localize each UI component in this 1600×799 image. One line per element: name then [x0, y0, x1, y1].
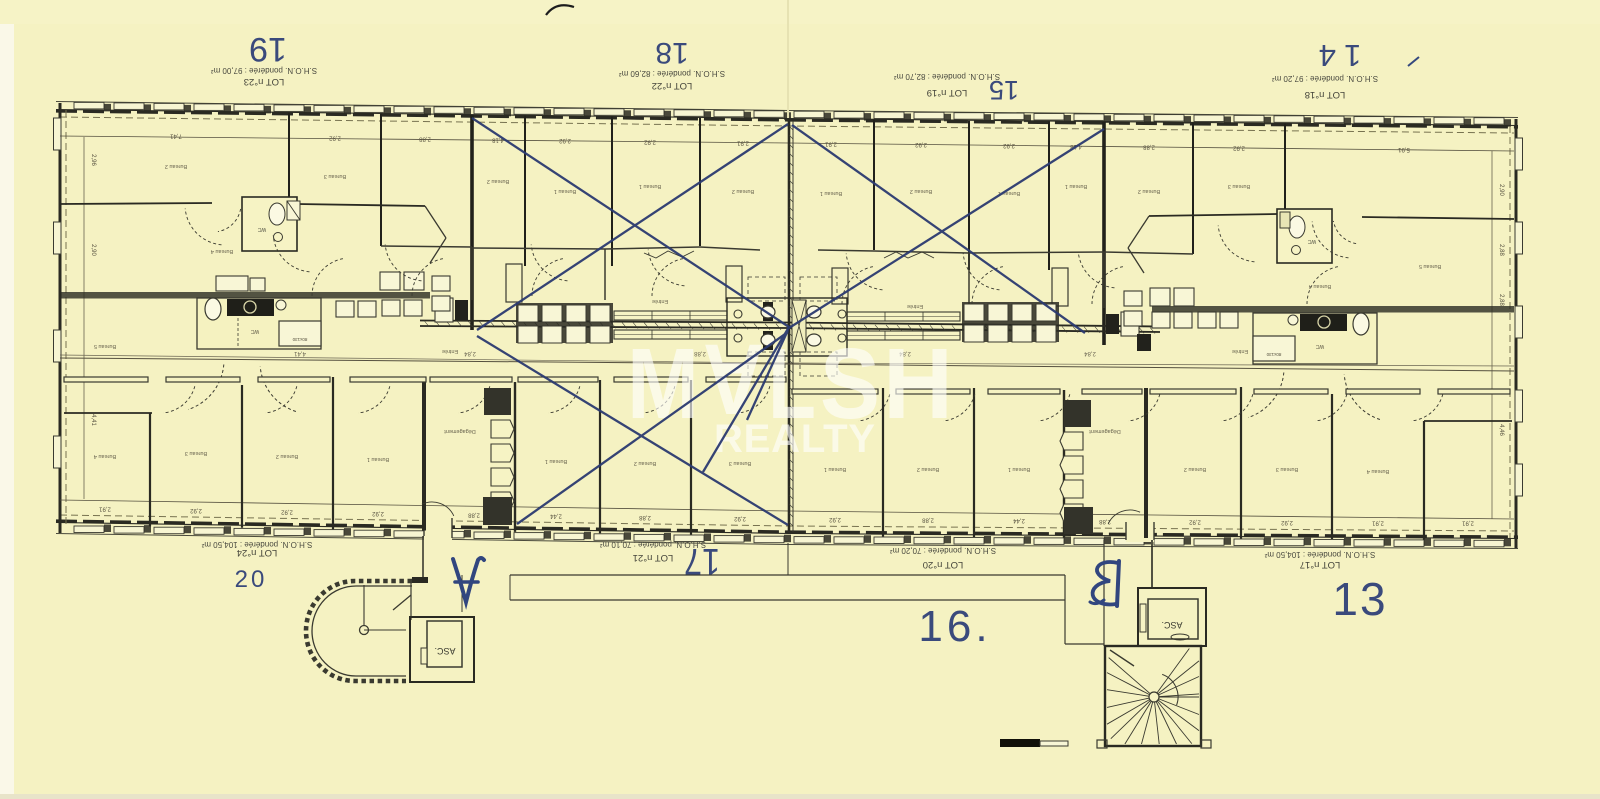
svg-text:Bureau 2: Bureau 2	[910, 188, 932, 194]
svg-text:Entrée: Entrée	[652, 298, 668, 304]
svg-text:2,44: 2,44	[1013, 517, 1025, 523]
svg-text:Bureau 1: Bureau 1	[545, 458, 567, 464]
svg-text:19: 19	[249, 30, 287, 68]
svg-text:2,92: 2,92	[915, 141, 927, 147]
svg-text:2,84: 2,84	[1084, 350, 1096, 356]
svg-text:M: M	[627, 328, 699, 440]
svg-text:2,44: 2,44	[550, 513, 562, 519]
svg-text:ASC.: ASC.	[1161, 620, 1182, 630]
svg-text:Bureau 2: Bureau 2	[487, 178, 509, 184]
svg-text:2,88: 2,88	[1143, 143, 1155, 149]
svg-text:Bureau 3: Bureau 3	[1228, 183, 1250, 189]
svg-text:2,92: 2,92	[372, 510, 384, 516]
svg-text:7,41: 7,41	[170, 132, 182, 138]
svg-text:2,91: 2,91	[1462, 520, 1474, 526]
svg-text:2,92: 2,92	[734, 515, 746, 521]
svg-text:Bureau 3: Bureau 3	[324, 173, 346, 179]
svg-text:Bureau 4: Bureau 4	[1309, 283, 1331, 289]
svg-text:80x130: 80x130	[1266, 352, 1281, 357]
svg-text:WC: WC	[1307, 238, 1316, 244]
svg-text:4,46: 4,46	[1498, 424, 1504, 436]
svg-text:17: 17	[684, 541, 720, 582]
svg-text:14: 14	[1311, 38, 1361, 73]
svg-text:2,96: 2,96	[90, 154, 96, 166]
svg-text:LOT n°18: LOT n°18	[1305, 89, 1346, 100]
svg-text:2,92: 2,92	[190, 507, 202, 513]
svg-text:Bureau 4: Bureau 4	[211, 248, 233, 254]
svg-text:2,88: 2,88	[639, 514, 651, 520]
svg-text:2,88: 2,88	[1498, 294, 1504, 306]
svg-text:5,91: 5,91	[1398, 146, 1410, 152]
svg-text:2,88: 2,88	[419, 136, 431, 142]
svg-text:Bureau 2: Bureau 2	[165, 163, 187, 169]
svg-text:2,88: 2,88	[922, 517, 934, 523]
svg-text:Bureau 3: Bureau 3	[1276, 466, 1298, 472]
svg-text:Entrée: Entrée	[1232, 348, 1248, 354]
svg-text:2,91: 2,91	[825, 140, 837, 146]
svg-text:ASC.: ASC.	[434, 646, 455, 656]
svg-text:2,92: 2,92	[329, 134, 341, 140]
svg-text:2,84: 2,84	[464, 350, 476, 356]
svg-text:Bureau 1: Bureau 1	[554, 188, 576, 194]
svg-text:Bureau 2: Bureau 2	[276, 453, 298, 459]
svg-text:4,41: 4,41	[90, 414, 96, 426]
svg-text:Bureau 1: Bureau 1	[1065, 183, 1087, 189]
svg-text:LOT n°19: LOT n°19	[927, 87, 968, 98]
svg-text:LOT n°24: LOT n°24	[237, 547, 278, 558]
svg-text:Bureau 2: Bureau 2	[732, 188, 754, 194]
svg-text:18: 18	[655, 36, 688, 69]
svg-text:2,92: 2,92	[1281, 519, 1293, 525]
svg-text:Bureau 1: Bureau 1	[639, 183, 661, 189]
svg-text:80x130: 80x130	[292, 337, 307, 342]
svg-text:2,88: 2,88	[468, 511, 480, 517]
svg-text:2,92: 2,92	[1233, 144, 1245, 150]
svg-text:Dégagement: Dégagement	[1089, 428, 1121, 434]
svg-text:20: 20	[235, 566, 268, 593]
svg-text:LOT n°20: LOT n°20	[923, 559, 964, 570]
svg-text:Entrée: Entrée	[442, 348, 458, 354]
svg-text:13: 13	[1332, 573, 1387, 625]
svg-text:LOT n°22: LOT n°22	[652, 80, 693, 91]
svg-text:Dégagement: Dégagement	[444, 428, 476, 434]
svg-text:2,92: 2,92	[1003, 142, 1015, 148]
svg-text:2,91: 2,91	[1372, 519, 1384, 525]
svg-text:Entrée: Entrée	[907, 303, 923, 309]
svg-text:REALTY: REALTY	[714, 417, 884, 461]
svg-text:Bureau 3: Bureau 3	[185, 450, 207, 456]
svg-text:WC: WC	[1315, 343, 1324, 349]
svg-text:S.H.O.N. pondérée : 104,50 m²: S.H.O.N. pondérée : 104,50 m²	[1264, 550, 1375, 559]
svg-text:2,92: 2,92	[644, 138, 656, 144]
svg-text:Bureau 4: Bureau 4	[1367, 468, 1389, 474]
svg-text:2,92: 2,92	[281, 508, 293, 514]
svg-text:2,91: 2,91	[99, 506, 111, 512]
svg-text:Bureau 1: Bureau 1	[824, 466, 846, 472]
svg-text:2,90: 2,90	[90, 244, 96, 256]
svg-text:S.H.O.N. pondérée : 82,70 m²: S.H.O.N. pondérée : 82,70 m²	[894, 72, 1001, 81]
svg-text:15: 15	[989, 75, 1019, 105]
svg-text:2,92: 2,92	[559, 137, 571, 143]
svg-text:Bureau 2: Bureau 2	[1184, 466, 1206, 472]
svg-text:Bureau 5: Bureau 5	[1419, 263, 1441, 269]
svg-text:2,88: 2,88	[1498, 244, 1504, 256]
svg-text:2,91: 2,91	[737, 139, 749, 145]
svg-text:H: H	[883, 328, 953, 440]
svg-text:WC: WC	[257, 226, 266, 232]
svg-text:LOT n°17: LOT n°17	[1300, 559, 1341, 570]
svg-text:S.H.O.N. pondérée : 82,60 m²: S.H.O.N. pondérée : 82,60 m²	[619, 69, 726, 78]
svg-text:Bureau 5: Bureau 5	[94, 343, 116, 349]
svg-text:S.H.O.N. pondérée : 97,20 m²: S.H.O.N. pondérée : 97,20 m²	[1272, 74, 1379, 83]
svg-text:Bureau 2: Bureau 2	[1138, 188, 1160, 194]
svg-text:16.: 16.	[918, 602, 991, 651]
svg-text:4,41: 4,41	[294, 350, 306, 356]
svg-text:Bureau 1: Bureau 1	[1008, 466, 1030, 472]
svg-text:LOT n°23: LOT n°23	[244, 76, 285, 87]
svg-text:2,92: 2,92	[829, 516, 841, 522]
svg-text:WC: WC	[250, 328, 259, 334]
svg-text:Bureau 1: Bureau 1	[367, 456, 389, 462]
svg-text:Bureau 1: Bureau 1	[820, 190, 842, 196]
svg-text:2,92: 2,92	[1189, 518, 1201, 524]
svg-text:Bureau 2: Bureau 2	[634, 460, 656, 466]
svg-text:S.H.O.N. pondérée : 70,20 m²: S.H.O.N. pondérée : 70,20 m²	[890, 546, 997, 555]
svg-text:Bureau 4: Bureau 4	[94, 453, 116, 459]
svg-text:Bureau 2: Bureau 2	[917, 466, 939, 472]
svg-text:LOT n°21: LOT n°21	[633, 552, 674, 563]
svg-text:2,90: 2,90	[1498, 184, 1504, 196]
